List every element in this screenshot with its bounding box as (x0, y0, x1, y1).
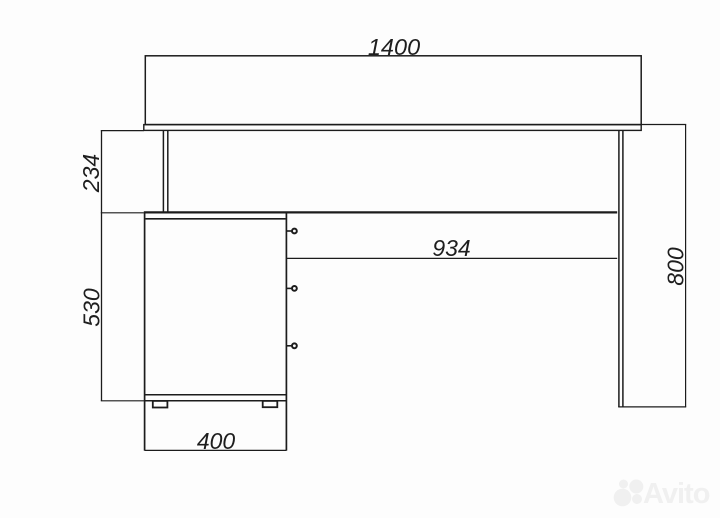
svg-text:Avito: Avito (643, 478, 710, 510)
svg-text:400: 400 (197, 428, 236, 454)
svg-text:1400: 1400 (368, 34, 420, 60)
svg-text:234: 234 (78, 154, 104, 193)
svg-text:800: 800 (663, 247, 689, 286)
svg-text:934: 934 (432, 235, 470, 261)
svg-text:530: 530 (79, 288, 105, 327)
